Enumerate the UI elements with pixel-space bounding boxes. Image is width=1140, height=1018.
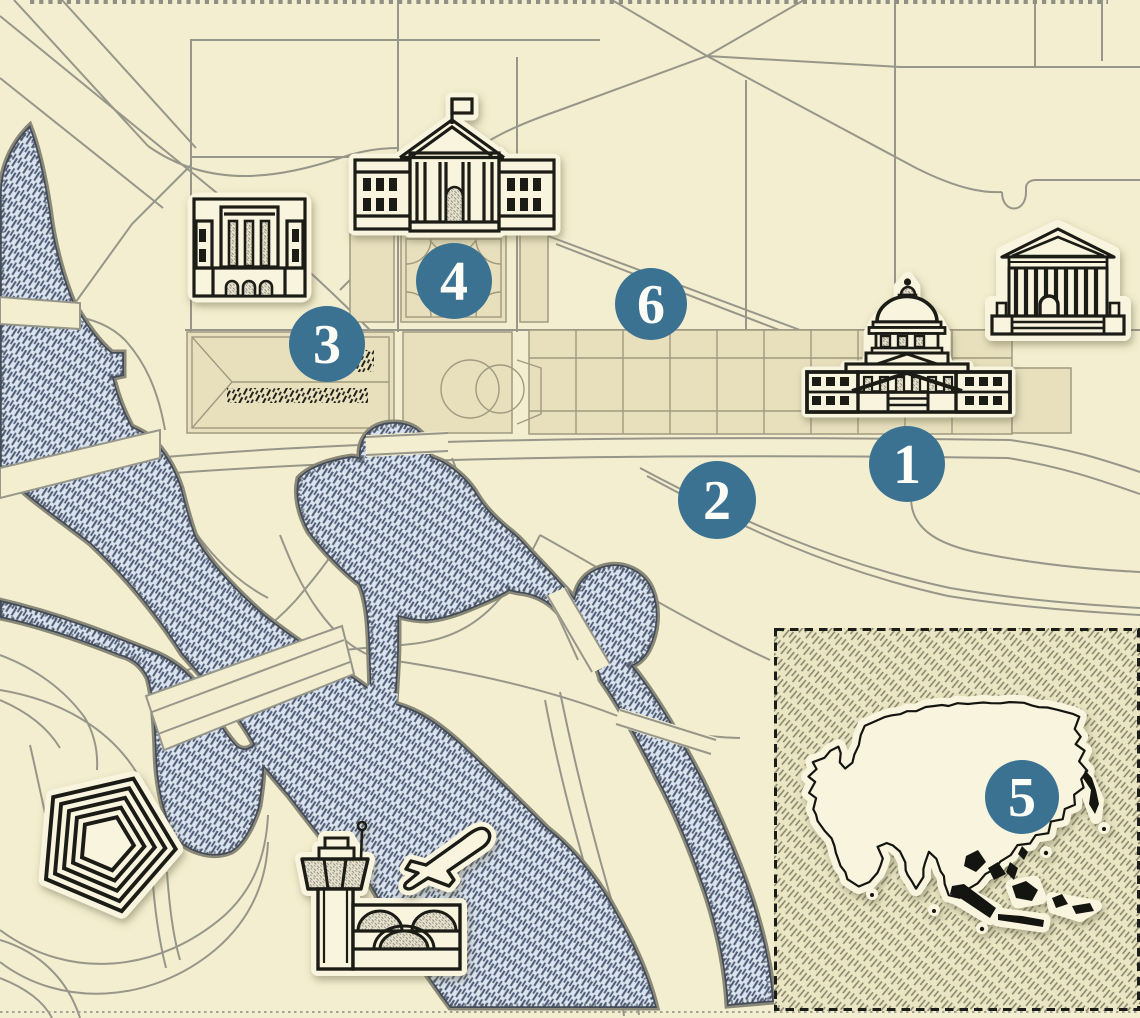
svg-text:2: 2 xyxy=(703,470,731,532)
svg-text:6: 6 xyxy=(637,274,665,336)
svg-text:3: 3 xyxy=(313,314,341,376)
svg-text:4: 4 xyxy=(440,251,468,313)
svg-text:1: 1 xyxy=(893,434,921,496)
svg-text:5: 5 xyxy=(1008,767,1036,829)
